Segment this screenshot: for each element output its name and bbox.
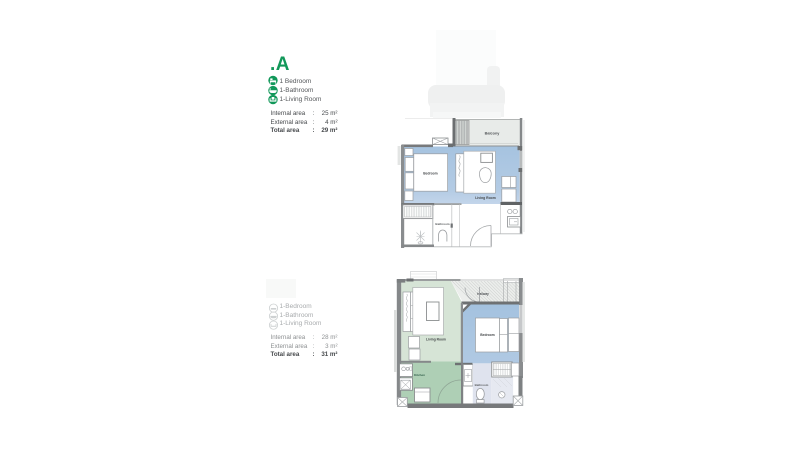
svg-text:Bathroom: Bathroom [475,383,489,387]
svg-text:Kitchen: Kitchen [414,373,425,377]
svg-text:Living Room: Living Room [426,338,446,342]
svg-text:Hallway: Hallway [477,292,489,296]
svg-text:Bedroom: Bedroom [480,333,495,337]
